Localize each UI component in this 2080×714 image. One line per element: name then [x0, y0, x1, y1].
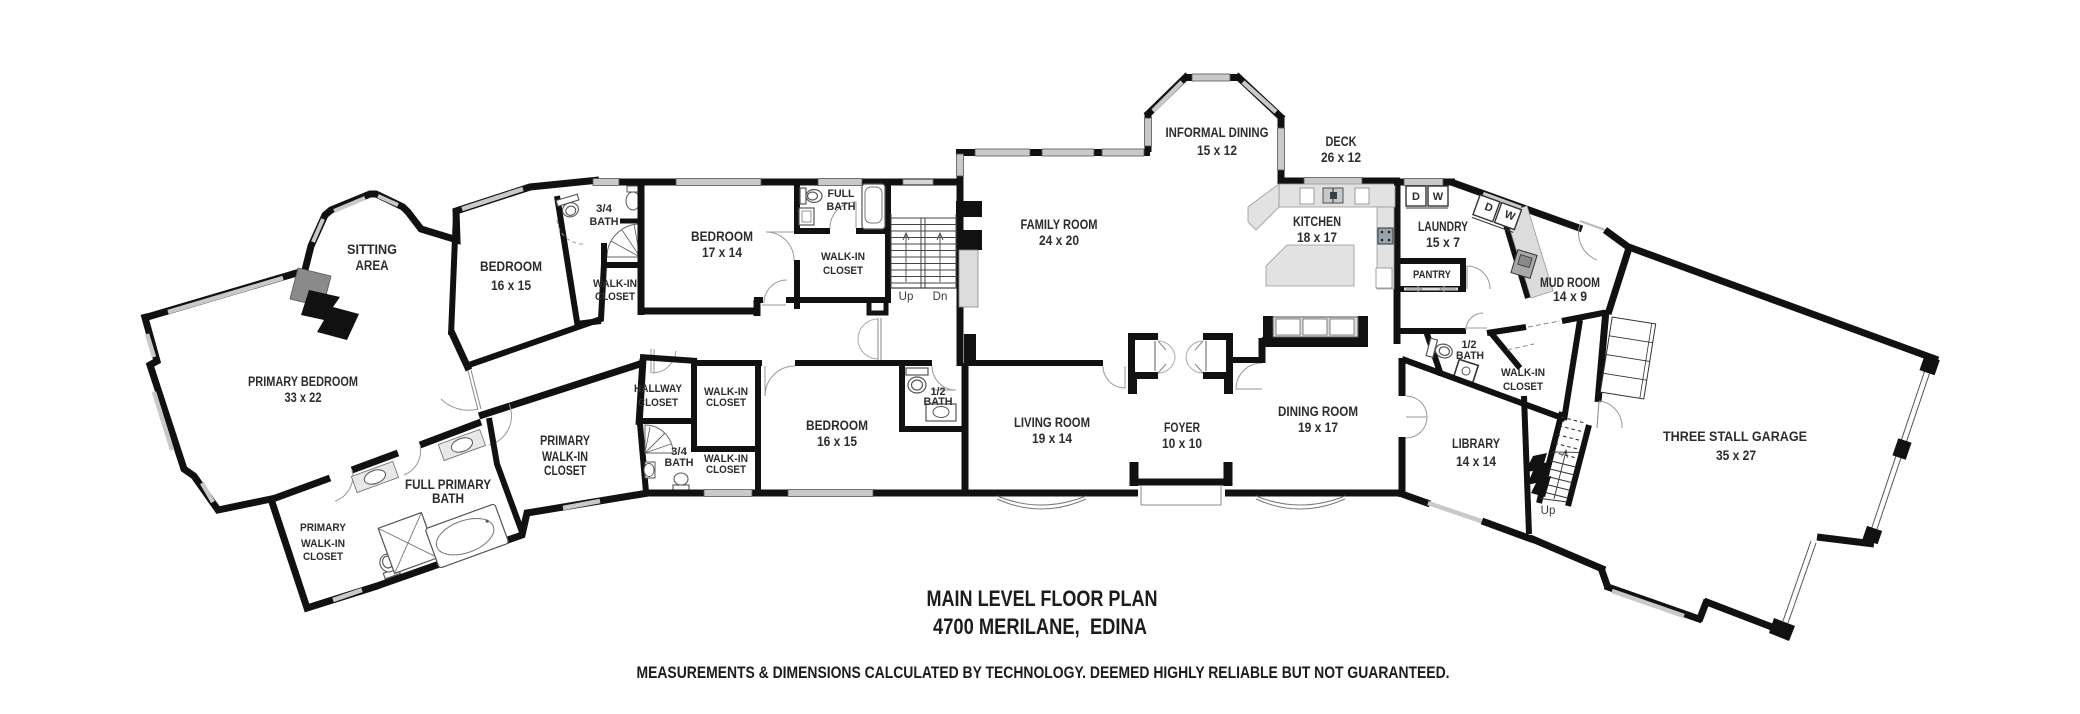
svg-text:FOYER: FOYER	[1164, 420, 1200, 435]
svg-text:Up: Up	[1541, 505, 1556, 517]
svg-text:19 x 14: 19 x 14	[1032, 431, 1072, 446]
svg-text:BATH: BATH	[590, 216, 619, 228]
svg-text:14 x 14: 14 x 14	[1456, 454, 1496, 469]
svg-text:CLOSET: CLOSET	[823, 265, 863, 277]
svg-text:24 x 20: 24 x 20	[1039, 233, 1079, 248]
svg-text:BATH: BATH	[432, 491, 464, 506]
svg-text:PRIMARY: PRIMARY	[540, 433, 590, 448]
svg-text:Dn: Dn	[933, 291, 948, 303]
svg-text:BEDROOM: BEDROOM	[480, 259, 542, 274]
svg-text:INFORMAL DINING: INFORMAL DINING	[1166, 125, 1269, 140]
svg-text:16 x 15: 16 x 15	[491, 278, 531, 293]
svg-text:LIBRARY: LIBRARY	[1452, 436, 1500, 451]
svg-text:4700 MERILANE, EDINA: 4700 MERILANE, EDINA	[933, 614, 1147, 639]
svg-text:BEDROOM: BEDROOM	[691, 229, 753, 244]
svg-text:FULL PRIMARY: FULL PRIMARY	[405, 477, 491, 492]
svg-text:FULL: FULL	[828, 188, 855, 200]
svg-text:CLOSET: CLOSET	[706, 397, 746, 409]
svg-text:CLOSET: CLOSET	[638, 397, 678, 409]
svg-text:CLOSET: CLOSET	[1503, 381, 1543, 393]
svg-text:10 x 10: 10 x 10	[1162, 436, 1202, 451]
svg-text:BATH: BATH	[924, 396, 953, 408]
svg-text:PANTRY: PANTRY	[1413, 269, 1452, 281]
svg-text:KITCHEN: KITCHEN	[1293, 214, 1341, 229]
svg-text:AREA: AREA	[356, 258, 389, 273]
svg-text:WALK-IN: WALK-IN	[821, 251, 865, 263]
svg-text:16 x 15: 16 x 15	[817, 434, 857, 449]
svg-text:26 x 12: 26 x 12	[1321, 150, 1361, 165]
svg-text:WALK-IN: WALK-IN	[542, 449, 588, 464]
svg-text:WALK-IN: WALK-IN	[1501, 367, 1545, 379]
svg-text:15 x 7: 15 x 7	[1426, 235, 1460, 250]
svg-text:PRIMARY BEDROOM: PRIMARY BEDROOM	[248, 374, 358, 389]
svg-text:14 x 9: 14 x 9	[1553, 289, 1587, 304]
svg-text:W: W	[1433, 191, 1444, 203]
svg-text:BATH: BATH	[827, 201, 856, 213]
svg-text:3/4: 3/4	[596, 203, 613, 215]
svg-text:SITTING: SITTING	[347, 242, 397, 257]
svg-text:18 x 17: 18 x 17	[1297, 230, 1337, 245]
svg-text:THREE STALL GARAGE: THREE STALL GARAGE	[1663, 429, 1807, 444]
svg-text:FAMILY ROOM: FAMILY ROOM	[1021, 217, 1098, 232]
svg-text:CLOSET: CLOSET	[544, 463, 587, 478]
svg-text:CLOSET: CLOSET	[706, 464, 746, 476]
svg-text:MAIN LEVEL FLOOR PLAN: MAIN LEVEL FLOOR PLAN	[927, 586, 1158, 611]
svg-text:BEDROOM: BEDROOM	[806, 418, 868, 433]
svg-text:HALLWAY: HALLWAY	[634, 383, 683, 395]
svg-text:DINING ROOM: DINING ROOM	[1278, 404, 1358, 419]
svg-text:19 x 17: 19 x 17	[1298, 420, 1338, 435]
svg-text:CLOSET: CLOSET	[595, 291, 635, 303]
svg-text:LAUNDRY: LAUNDRY	[1418, 219, 1468, 234]
svg-text:D: D	[1412, 191, 1420, 203]
svg-text:17 x 14: 17 x 14	[702, 245, 742, 260]
svg-text:Up: Up	[899, 291, 914, 303]
svg-text:MEASUREMENTS & DIMENSIONS CALC: MEASUREMENTS & DIMENSIONS CALCULATED BY …	[637, 664, 1450, 682]
svg-text:MUD ROOM: MUD ROOM	[1540, 275, 1600, 290]
svg-text:35 x 27: 35 x 27	[1716, 448, 1756, 463]
svg-text:CLOSET: CLOSET	[303, 551, 343, 563]
svg-text:33 x 22: 33 x 22	[285, 390, 322, 405]
svg-text:WALK-IN: WALK-IN	[301, 538, 345, 550]
svg-text:BATH: BATH	[1456, 350, 1484, 362]
svg-text:BATH: BATH	[665, 457, 694, 469]
svg-text:WALK-IN: WALK-IN	[593, 278, 637, 290]
svg-text:PRIMARY: PRIMARY	[300, 522, 347, 534]
svg-text:DECK: DECK	[1326, 134, 1357, 149]
svg-text:15 x 12: 15 x 12	[1197, 143, 1237, 158]
svg-text:LIVING ROOM: LIVING ROOM	[1014, 415, 1090, 430]
